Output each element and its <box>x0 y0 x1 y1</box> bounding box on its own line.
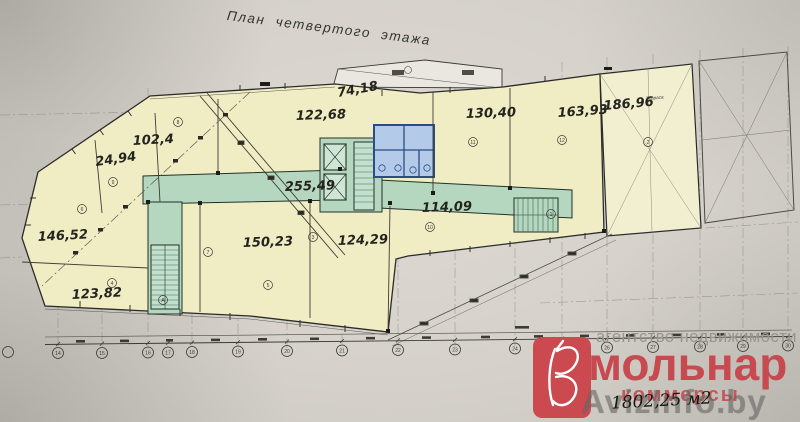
room-bubble-label: 10 <box>427 225 433 231</box>
open-terrace-outline <box>699 52 794 223</box>
terrace-room <box>600 64 701 236</box>
corridor-area-255-49: 255,49 <box>285 178 336 195</box>
axis-bubble-label: 16 <box>145 351 151 357</box>
room-bubble-label: 7 <box>207 250 210 256</box>
axis-bubble-label: 14 <box>55 351 61 357</box>
room-area-122-68: 122,68 <box>296 107 347 124</box>
axis-bubble-label: 18 <box>189 350 195 356</box>
room-bubble-label: 9 <box>112 180 115 186</box>
room-area-146-52: 146,52 <box>37 227 88 245</box>
room-bubble-label: 5 <box>267 283 270 289</box>
room-bubble-label: 8 <box>177 120 180 126</box>
room-area-114-09: 114,09 <box>422 199 473 216</box>
room-bubble-label: 1 <box>550 212 553 218</box>
room-area-130-40: 130,40 <box>466 105 517 122</box>
axis-bubble-label: 19 <box>235 350 241 356</box>
room-bubble-label: 6 <box>81 207 84 213</box>
axis-bubble-label: 22 <box>395 348 401 354</box>
axis-bubble-label: 15 <box>99 351 105 357</box>
axis-bubble-label: 20 <box>284 349 290 355</box>
axis-bubble-label: 21 <box>339 349 345 355</box>
room-bubble-label: 11 <box>470 140 475 146</box>
room-bubble-label: 2 <box>647 140 650 146</box>
room-bubble-label: 3 <box>312 235 315 241</box>
room-area-124-29: 124,29 <box>338 232 389 249</box>
sanitary-block <box>374 125 434 177</box>
room-area-123-82: 123,82 <box>71 285 122 303</box>
room-area-150-23: 150,23 <box>243 234 294 251</box>
brand-name: мольнар <box>588 341 787 387</box>
axis-bubble-label: 17 <box>165 351 171 357</box>
scanned-floor-plan-photo: План четвертого этажа <box>0 0 800 422</box>
room-area-102-4: 102,4 <box>132 132 174 149</box>
room-bubble-label: 12 <box>559 138 565 144</box>
axis-bubble-label: 23 <box>452 348 458 354</box>
axis-bubble-label: 24 <box>512 347 518 353</box>
